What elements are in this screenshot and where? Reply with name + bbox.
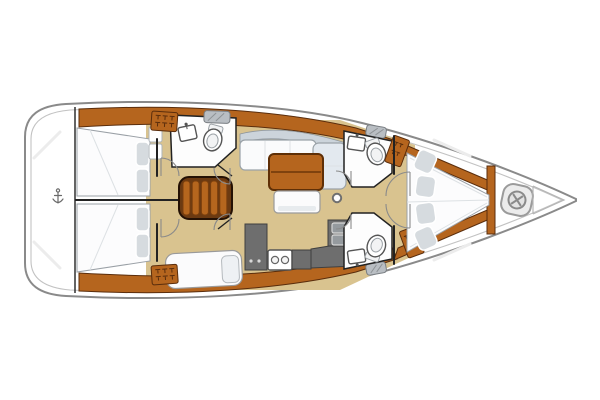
- mast-post-icon: Mast compression post: [333, 194, 341, 202]
- wardrobe-hanger-icon: [151, 111, 178, 132]
- pillow: [136, 207, 149, 231]
- wardrobe-hanger-icon: [151, 264, 178, 285]
- locker: [149, 144, 162, 159]
- pillow: [136, 234, 149, 258]
- bench-pillow: [221, 255, 239, 283]
- floorplan-canvas: Sailing yacht interior layout plan, top …: [0, 0, 600, 400]
- aft-cabin-starboard: Aft double cabin (starboard): [77, 128, 150, 196]
- hatch-icon: [204, 111, 230, 124]
- pillow: [136, 142, 149, 166]
- pillow: [136, 169, 149, 193]
- pillow: [415, 175, 437, 198]
- boat-floorplan: Sailing yacht interior layout plan, top …: [0, 0, 600, 400]
- windlass-icon: [499, 182, 535, 218]
- pillow: [415, 202, 437, 225]
- bench-cushion: [278, 206, 316, 211]
- stove-icon: [268, 250, 292, 270]
- aft-cabin-port: Aft double cabin (port): [77, 204, 150, 272]
